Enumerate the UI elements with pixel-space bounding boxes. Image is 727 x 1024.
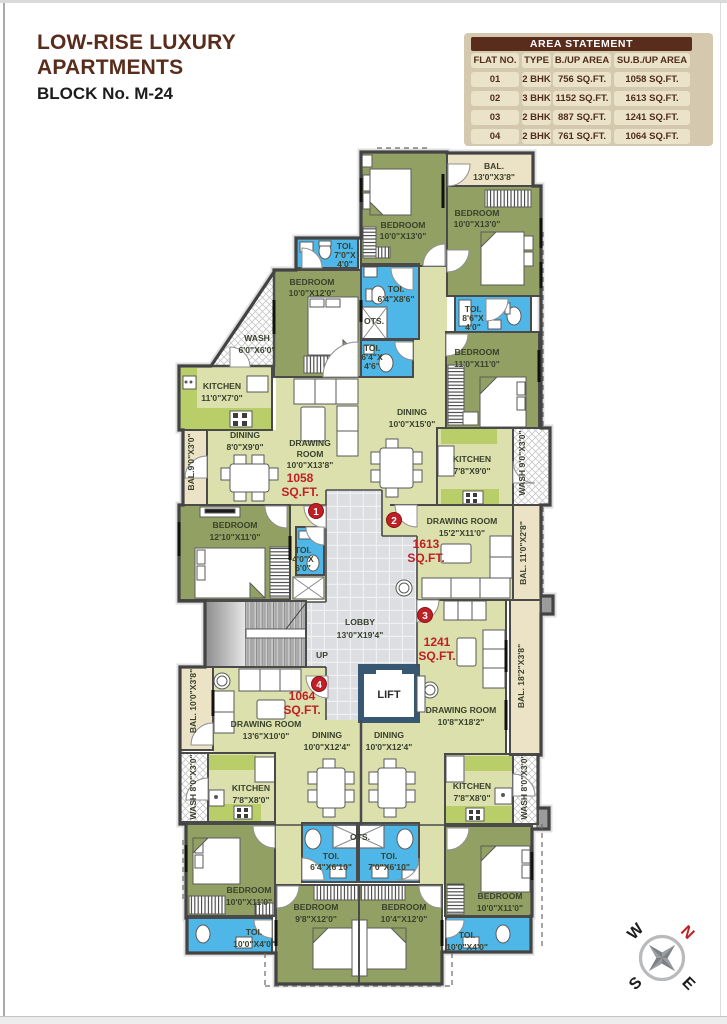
svg-text:13'0"X19'4": 13'0"X19'4" [337, 630, 384, 640]
svg-text:BEDROOM: BEDROOM [227, 885, 272, 895]
svg-text:BEDROOM: BEDROOM [455, 208, 500, 218]
svg-text:DRAWING ROOM: DRAWING ROOM [231, 719, 302, 729]
svg-text:6'4"X8'6": 6'4"X8'6" [377, 294, 414, 304]
svg-text:1064: 1064 [289, 689, 316, 703]
svg-text:11'0"X7'0": 11'0"X7'0" [201, 393, 242, 403]
svg-text:BEDROOM: BEDROOM [294, 902, 339, 912]
svg-text:10'0"X11'0": 10'0"X11'0" [477, 903, 523, 913]
svg-text:ROOM: ROOM [297, 449, 324, 459]
svg-text:10'0"X15'0": 10'0"X15'0" [389, 419, 436, 429]
svg-text:DINING: DINING [230, 430, 260, 440]
svg-text:11'0"X11'0": 11'0"X11'0" [454, 359, 500, 369]
svg-text:BEDROOM: BEDROOM [381, 220, 426, 230]
svg-text:10'0"X13'8": 10'0"X13'8" [287, 460, 334, 470]
svg-text:KITCHEN: KITCHEN [232, 783, 270, 793]
svg-text:BEDROOM: BEDROOM [382, 902, 427, 912]
svg-text:KITCHEN: KITCHEN [453, 454, 491, 464]
svg-text:WASH 9'0"X3'0": WASH 9'0"X3'0" [517, 430, 527, 495]
svg-text:TOI.: TOI. [459, 930, 476, 940]
svg-text:DINING: DINING [312, 730, 342, 740]
svg-text:OTS.: OTS. [350, 832, 370, 842]
svg-text:10'4"X12'0": 10'4"X12'0" [381, 914, 428, 924]
svg-text:TOI.: TOI. [246, 927, 263, 937]
svg-text:1058: 1058 [287, 471, 314, 485]
svg-text:BAL. 10'0"X3'8": BAL. 10'0"X3'8" [188, 669, 198, 733]
svg-text:DINING: DINING [374, 730, 404, 740]
svg-text:1: 1 [313, 507, 319, 518]
svg-text:DRAWING ROOM: DRAWING ROOM [426, 705, 497, 715]
svg-text:BEDROOM: BEDROOM [290, 277, 335, 287]
svg-text:BAL.: BAL. [484, 161, 504, 171]
svg-text:4'0": 4'0" [465, 322, 481, 332]
svg-text:E: E [678, 974, 698, 994]
svg-text:6'0"X6'0": 6'0"X6'0" [238, 345, 275, 355]
svg-text:SQ.FT.: SQ.FT. [418, 649, 455, 663]
svg-text:3: 3 [422, 611, 428, 622]
svg-text:N: N [677, 923, 697, 943]
svg-text:1241: 1241 [424, 635, 451, 649]
svg-text:7'8"X8'0": 7'8"X8'0" [232, 795, 269, 805]
svg-text:4: 4 [316, 680, 322, 691]
svg-text:OTS.: OTS. [364, 316, 384, 326]
svg-text:7'0"X6'10": 7'0"X6'10" [368, 862, 410, 872]
svg-text:15'2"X11'0": 15'2"X11'0" [439, 528, 485, 538]
svg-text:10'0"X12'4": 10'0"X12'4" [304, 742, 351, 752]
svg-text:DRAWING ROOM: DRAWING ROOM [427, 516, 498, 526]
svg-text:10'8"X18'2": 10'8"X18'2" [438, 717, 485, 727]
svg-text:DRAWING: DRAWING [289, 438, 331, 448]
svg-text:9'8"X12'0": 9'8"X12'0" [295, 914, 337, 924]
svg-text:4'0": 4'0" [337, 259, 353, 269]
svg-text:SQ.FT.: SQ.FT. [283, 703, 320, 717]
svg-text:BEDROOM: BEDROOM [213, 520, 258, 530]
svg-text:10'0"X12'4": 10'0"X12'4" [366, 742, 413, 752]
svg-text:10'0"X12'0": 10'0"X12'0" [289, 288, 336, 298]
svg-text:10'0"X13'0": 10'0"X13'0" [454, 219, 501, 229]
svg-text:7'8"X9'0": 7'8"X9'0" [453, 466, 490, 476]
svg-text:BAL. 11'0"X2'8": BAL. 11'0"X2'8" [518, 521, 528, 585]
svg-text:7'8"X8'0": 7'8"X8'0" [453, 793, 490, 803]
svg-text:UP: UP [316, 650, 328, 660]
svg-text:WASH 8'0"X3'0": WASH 8'0"X3'0" [188, 754, 198, 819]
svg-text:TOI.: TOI. [323, 851, 340, 861]
svg-text:BEDROOM: BEDROOM [455, 347, 500, 357]
svg-text:BAL.9'0"X3'0": BAL.9'0"X3'0" [186, 433, 196, 490]
svg-text:SQ.FT.: SQ.FT. [281, 485, 318, 499]
svg-text:LIFT: LIFT [377, 689, 400, 701]
svg-text:1613: 1613 [413, 537, 440, 551]
svg-text:WASH 8'0"X3'0": WASH 8'0"X3'0" [519, 754, 529, 819]
svg-text:2: 2 [391, 516, 397, 527]
svg-text:LOBBY: LOBBY [345, 617, 375, 627]
svg-text:10'0"X11'0": 10'0"X11'0" [226, 897, 272, 907]
svg-text:TOI.: TOI. [381, 851, 398, 861]
svg-text:10'0"X4'0": 10'0"X4'0" [446, 942, 488, 952]
svg-text:10'0"X13'0": 10'0"X13'0" [380, 231, 427, 241]
svg-text:BAL. 18'2"X3'8": BAL. 18'2"X3'8" [516, 644, 526, 708]
svg-text:BEDROOM: BEDROOM [478, 891, 523, 901]
svg-text:W: W [624, 920, 647, 943]
svg-text:4'6": 4'6" [364, 361, 380, 371]
svg-text:S: S [626, 974, 646, 994]
svg-text:12'10"X11'0": 12'10"X11'0" [210, 532, 261, 542]
svg-text:13'0"X3'8": 13'0"X3'8" [473, 172, 515, 182]
svg-text:WASH: WASH [244, 333, 270, 343]
svg-text:DINING: DINING [397, 407, 427, 417]
svg-text:SQ.FT.: SQ.FT. [407, 551, 444, 565]
svg-text:8'0"X9'0": 8'0"X9'0" [226, 442, 263, 452]
svg-text:KITCHEN: KITCHEN [203, 381, 241, 391]
svg-text:10'0"X4'0": 10'0"X4'0" [233, 939, 275, 949]
svg-text:TOI.: TOI. [388, 284, 405, 294]
svg-text:KITCHEN: KITCHEN [453, 781, 491, 791]
svg-text:6'0": 6'0" [295, 563, 311, 573]
svg-text:6'4"X6'10": 6'4"X6'10" [310, 862, 352, 872]
svg-text:13'6"X10'0": 13'6"X10'0" [243, 731, 290, 741]
